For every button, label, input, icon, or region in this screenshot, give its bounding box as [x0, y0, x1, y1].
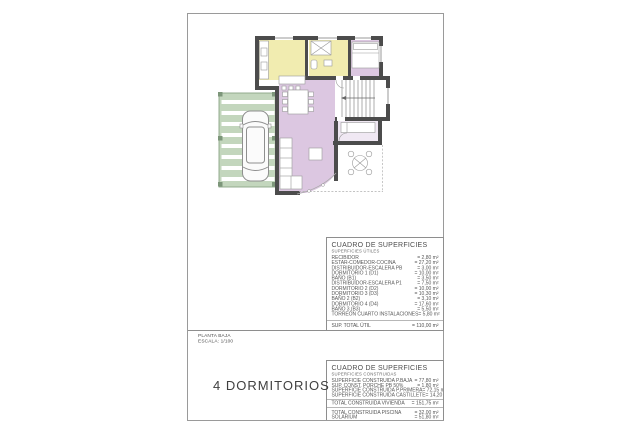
row-label: TORREÓN CUARTO INSTALACIONES — [332, 312, 419, 317]
table-row: TORREÓN CUARTO INSTALACIONES= 5,80 m² — [327, 312, 443, 317]
plan-scale: ESCALA: 1/100 — [198, 339, 298, 345]
total-label: TOTAL CONSTRUIDA VIVIENDA — [332, 400, 405, 406]
title-block: PLANTA BAJA ESCALA: 1/100 — [198, 333, 398, 355]
row-label: SOLARIUM — [332, 415, 358, 420]
row-value: = 5,80 m² — [418, 312, 439, 317]
hall-floor — [305, 80, 335, 88]
table-title: CUADRO DE SUPERFICIES — [327, 361, 443, 372]
total-value: = 110,00 m² — [412, 323, 438, 329]
stairs — [335, 80, 386, 117]
floor-plan — [185, 10, 445, 210]
plan-caption: 4 DORMITORIOS — [213, 378, 330, 393]
total-value: = 151,75 m² — [412, 400, 439, 406]
row-label: SUPERFICIE CONSTRUIDA CASTILLETE — [332, 393, 426, 398]
drawing-canvas: PLANTA BAJA ESCALA: 1/100 CUADRO DE SUPE… — [0, 0, 630, 423]
areas-table-construidas: CUADRO DE SUPERFICIES SUPERFICIES CONSTR… — [326, 360, 444, 420]
dining-set — [283, 90, 314, 114]
table-total-row: SUP. TOTAL ÚTIL= 110,00 m² — [327, 321, 443, 332]
table-row: SUPERFICIE CONSTRUIDA CASTILLETE= 14,20 … — [327, 393, 443, 398]
table-row: SOLARIUM= 51,80 m² — [327, 415, 443, 420]
total-label: SUP. TOTAL ÚTIL — [332, 323, 371, 329]
car — [240, 111, 271, 181]
row-value: = 51,80 m² — [414, 415, 438, 420]
areas-table-utiles: CUADRO DE SUPERFICIES SUPERFICIES ÚTILES… — [326, 237, 444, 331]
table-title: CUADRO DE SUPERFICIES — [327, 238, 443, 249]
table-total-row: TOTAL CONSTRUIDA VIVIENDA= 151,75 m² — [327, 399, 443, 408]
row-value: = 14,20 m² — [425, 393, 444, 398]
bed-double — [352, 42, 379, 68]
terrace-table — [348, 151, 372, 175]
